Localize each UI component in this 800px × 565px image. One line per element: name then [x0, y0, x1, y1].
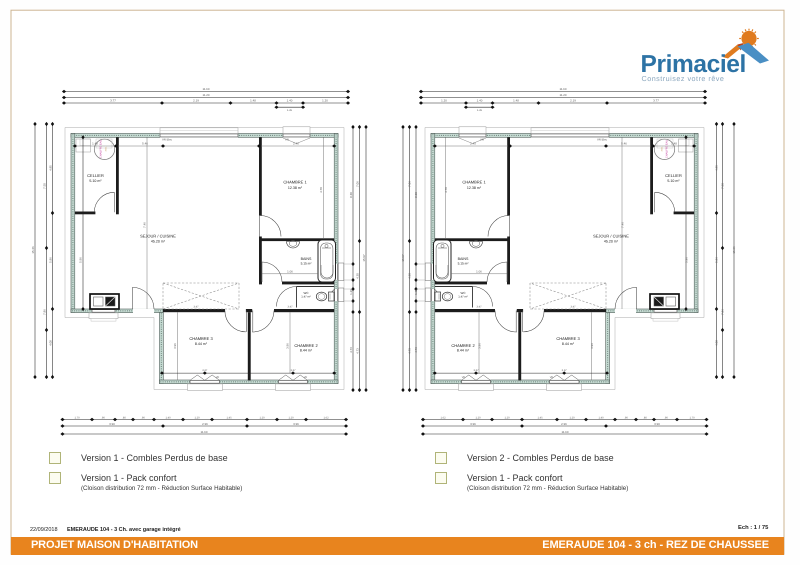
- svg-text:5.86: 5.86: [715, 257, 719, 263]
- svg-text:1.47 m²: 1.47 m²: [458, 295, 468, 299]
- svg-text:1.26: 1.26: [349, 289, 353, 295]
- svg-text:11.60: 11.60: [202, 87, 209, 91]
- svg-text:1.20: 1.20: [288, 416, 294, 419]
- svg-text:4.73: 4.73: [355, 348, 359, 354]
- svg-text:4.08: 4.08: [715, 340, 719, 346]
- svg-text:VR: VR: [216, 376, 220, 379]
- svg-text:3.96: 3.96: [477, 343, 481, 349]
- svg-text:1.47 m²: 1.47 m²: [301, 295, 311, 299]
- svg-text:300L: 300L: [661, 146, 664, 152]
- svg-text:CHAMBRE 2: CHAMBRE 2: [451, 343, 475, 348]
- svg-text:8.44 m²: 8.44 m²: [457, 349, 470, 353]
- svg-text:VR: VR: [550, 376, 554, 379]
- svg-text:15.97: 15.97: [401, 254, 405, 262]
- svg-text:.90: .90: [141, 416, 145, 419]
- svg-text:5.15 m²: 5.15 m²: [458, 262, 469, 266]
- svg-text:3.37: 3.37: [473, 369, 479, 372]
- svg-text:8.44 m²: 8.44 m²: [300, 349, 313, 353]
- svg-text:CHAUFFE EAU: CHAUFFE EAU: [100, 140, 103, 158]
- svg-text:1.48: 1.48: [513, 98, 519, 102]
- svg-text:5.96: 5.96: [684, 257, 688, 263]
- svg-text:7.50: 7.50: [721, 183, 725, 189]
- svg-text:CHAMBRE 3: CHAMBRE 3: [189, 336, 213, 341]
- svg-text:2.96: 2.96: [561, 422, 567, 426]
- svg-text:1.45: 1.45: [226, 416, 232, 419]
- svg-text:CELLIER: CELLIER: [87, 173, 104, 178]
- svg-text:3.37: 3.37: [290, 369, 296, 372]
- svg-text:1.20: 1.20: [259, 416, 265, 419]
- svg-text:1.62: 1.62: [440, 416, 446, 419]
- svg-text:4.73: 4.73: [349, 347, 353, 353]
- svg-text:3.90: 3.90: [654, 422, 660, 426]
- svg-text:12.38 m²: 12.38 m²: [467, 186, 482, 190]
- svg-text:.80: .80: [643, 416, 647, 419]
- svg-text:4.30: 4.30: [408, 273, 412, 279]
- svg-text:3.77: 3.77: [110, 98, 116, 102]
- svg-text:CELLIER: CELLIER: [665, 173, 682, 178]
- svg-text:CHAUFFE EAU: CHAUFFE EAU: [666, 140, 669, 158]
- svg-text:1.40: 1.40: [477, 98, 483, 102]
- svg-text:3.90: 3.90: [109, 422, 115, 426]
- svg-text:1.06: 1.06: [476, 270, 482, 274]
- svg-text:1.20: 1.20: [441, 98, 447, 102]
- svg-text:3.77: 3.77: [653, 98, 659, 102]
- svg-text:.90: .90: [624, 416, 628, 419]
- svg-text:5.15 m²: 5.15 m²: [301, 262, 312, 266]
- svg-text:1.26: 1.26: [414, 289, 418, 295]
- svg-text:VR Elec: VR Elec: [597, 138, 608, 142]
- svg-text:4.30: 4.30: [355, 273, 359, 279]
- svg-text:1.48: 1.48: [671, 142, 677, 146]
- svg-text:4.73: 4.73: [408, 348, 412, 354]
- svg-text:Construisez votre rêve: Construisez votre rêve: [642, 74, 725, 83]
- svg-text:1.40: 1.40: [598, 416, 604, 419]
- svg-text:12.38 m²: 12.38 m²: [288, 186, 303, 190]
- svg-text:5.96: 5.96: [79, 257, 83, 263]
- svg-text:2.19: 2.19: [570, 98, 576, 102]
- svg-text:2.40: 2.40: [470, 142, 476, 146]
- svg-text:1.20: 1.20: [322, 98, 328, 102]
- svg-text:1.48: 1.48: [250, 98, 256, 102]
- svg-text:7.86: 7.86: [42, 309, 46, 315]
- svg-text:.90: .90: [664, 416, 668, 419]
- svg-text:11.60: 11.60: [561, 430, 568, 434]
- svg-text:45.20 m²: 45.20 m²: [151, 240, 166, 244]
- svg-text:7.46: 7.46: [620, 222, 624, 228]
- svg-text:1.40: 1.40: [287, 98, 293, 102]
- svg-text:11.20: 11.20: [202, 93, 209, 97]
- svg-text:VR: VR: [304, 376, 308, 379]
- svg-text:3.37: 3.37: [562, 369, 568, 372]
- svg-text:1.45: 1.45: [477, 109, 483, 112]
- svg-text:3.47: 3.47: [476, 306, 482, 309]
- svg-text:1.62: 1.62: [323, 416, 329, 419]
- svg-text:11.20: 11.20: [559, 93, 566, 97]
- svg-text:5.10 m²: 5.10 m²: [667, 179, 680, 183]
- svg-text:5.46: 5.46: [142, 142, 148, 146]
- svg-text:7.46: 7.46: [143, 222, 147, 228]
- svg-text:3.96: 3.96: [590, 343, 594, 349]
- svg-text:1.20: 1.20: [194, 416, 200, 419]
- svg-text:VR Elec: VR Elec: [162, 138, 173, 142]
- svg-text:1.40: 1.40: [165, 416, 171, 419]
- svg-text:CHAMBRE 2: CHAMBRE 2: [294, 343, 318, 348]
- svg-text:8.30: 8.30: [414, 192, 418, 198]
- svg-text:4.85: 4.85: [48, 165, 52, 171]
- svg-text:8.44 m²: 8.44 m²: [195, 342, 208, 346]
- svg-text:VR: VR: [285, 138, 289, 142]
- svg-text:300L: 300L: [105, 146, 108, 152]
- svg-text:11.60: 11.60: [200, 430, 207, 434]
- svg-text:CHAMBRE 3: CHAMBRE 3: [556, 336, 580, 341]
- svg-text:7.50: 7.50: [42, 183, 46, 189]
- svg-text:8.30: 8.30: [349, 192, 353, 198]
- svg-text:1.45: 1.45: [287, 109, 293, 112]
- svg-text:3.47: 3.47: [193, 306, 199, 309]
- svg-text:15.97: 15.97: [362, 254, 366, 262]
- svg-text:3.96: 3.96: [470, 422, 476, 426]
- svg-text:3.96: 3.96: [173, 343, 177, 349]
- svg-text:1.70: 1.70: [74, 416, 80, 419]
- svg-text:15.36: 15.36: [732, 246, 736, 254]
- svg-text:.80: .80: [122, 416, 126, 419]
- svg-text:1.48: 1.48: [92, 142, 98, 146]
- svg-text:3.37: 3.37: [202, 369, 208, 372]
- svg-text:7.86: 7.86: [721, 309, 725, 315]
- svg-text:5.86: 5.86: [48, 257, 52, 263]
- svg-text:3.47: 3.47: [287, 306, 293, 309]
- svg-text:1.06: 1.06: [287, 270, 293, 274]
- svg-text:4.70: 4.70: [319, 187, 323, 193]
- svg-text:1.45: 1.45: [537, 416, 543, 419]
- svg-text:11.60: 11.60: [559, 87, 566, 91]
- svg-text:BAINS: BAINS: [458, 257, 469, 261]
- svg-text:.90: .90: [101, 416, 105, 419]
- svg-text:2.19: 2.19: [193, 98, 199, 102]
- svg-text:5.46: 5.46: [621, 142, 627, 146]
- svg-text:3.96: 3.96: [286, 343, 290, 349]
- svg-text:8.44 m²: 8.44 m²: [562, 342, 575, 346]
- svg-text:VR: VR: [480, 138, 484, 142]
- svg-text:7.06: 7.06: [408, 181, 412, 187]
- svg-text:45.20 m²: 45.20 m²: [604, 240, 619, 244]
- svg-text:4.85: 4.85: [715, 165, 719, 171]
- svg-text:1.20: 1.20: [569, 416, 575, 419]
- svg-text:4.73: 4.73: [414, 347, 418, 353]
- svg-text:5.10 m²: 5.10 m²: [89, 179, 102, 183]
- svg-text:1.70: 1.70: [689, 416, 695, 419]
- svg-text:2.96: 2.96: [202, 422, 208, 426]
- svg-text:3.47: 3.47: [570, 306, 576, 309]
- svg-text:CHAMBRE 1: CHAMBRE 1: [462, 180, 486, 185]
- svg-text:VR: VR: [462, 376, 466, 379]
- svg-text:4.08: 4.08: [48, 340, 52, 346]
- svg-text:SEJOUR / CUISINE: SEJOUR / CUISINE: [593, 234, 629, 239]
- svg-text:1.20: 1.20: [504, 416, 510, 419]
- svg-text:4.70: 4.70: [444, 187, 448, 193]
- svg-text:2.40: 2.40: [293, 142, 299, 146]
- svg-text:7.06: 7.06: [355, 181, 359, 187]
- svg-text:3.96: 3.96: [293, 422, 299, 426]
- svg-text:1.20: 1.20: [475, 416, 481, 419]
- svg-text:15.36: 15.36: [31, 246, 35, 254]
- svg-text:SEJOUR / CUISINE: SEJOUR / CUISINE: [140, 234, 176, 239]
- svg-text:BAINS: BAINS: [301, 257, 312, 261]
- svg-text:CHAMBRE 1: CHAMBRE 1: [283, 180, 307, 185]
